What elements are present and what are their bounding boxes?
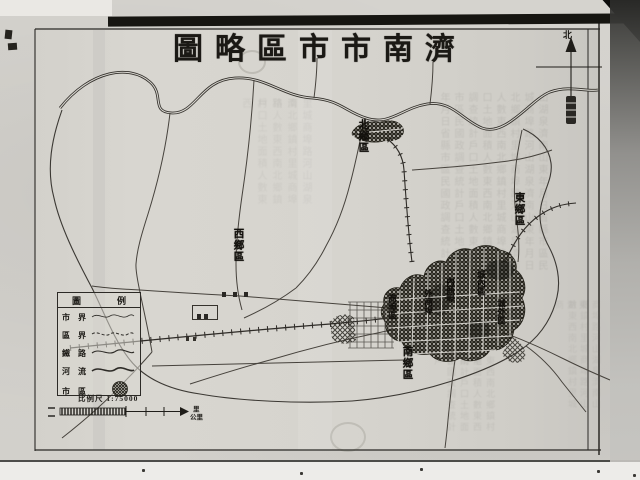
- ghost-text-column: 商埠路河山湖泉濟南山東: [577, 300, 603, 420]
- scanned-map-photo: { "colors": { "paper": "#d7d5cf", "ink":…: [0, 0, 640, 480]
- ghost-text-column: 口土地面積人數東西南北鄉鎮村里: [478, 92, 493, 272]
- bleed-through-text: 年月日省縣市區民國政調查統計戶市區民國政調查統計戶口土地面積調查統計戶口土地面積…: [0, 0, 640, 480]
- ghost-text-column: 山湖泉濟南山東年月日省縣市區民: [534, 92, 549, 272]
- ghost-text-column: 年月日省縣市區民國政調查統計戶: [436, 92, 451, 272]
- ghost-text-column: 里城商埠路河山湖泉濟: [283, 98, 313, 208]
- ghost-text-column: 東西南北鄉鎮村里: [471, 356, 497, 434]
- ghost-text-column: 北鄉鎮村里城商埠路河山湖泉濟南: [506, 92, 521, 272]
- ghost-text-column: 調查統計戶口土地面積人數東西南: [464, 92, 479, 272]
- ghost-text-column: 人數東西南北鄉鎮村里城商埠路河: [492, 92, 507, 272]
- ghost-text-column: 市區民國政調查統計戶口土地面積: [450, 92, 465, 272]
- ghost-text-column: 城商埠路河山湖泉濟南山東年月日: [520, 92, 535, 272]
